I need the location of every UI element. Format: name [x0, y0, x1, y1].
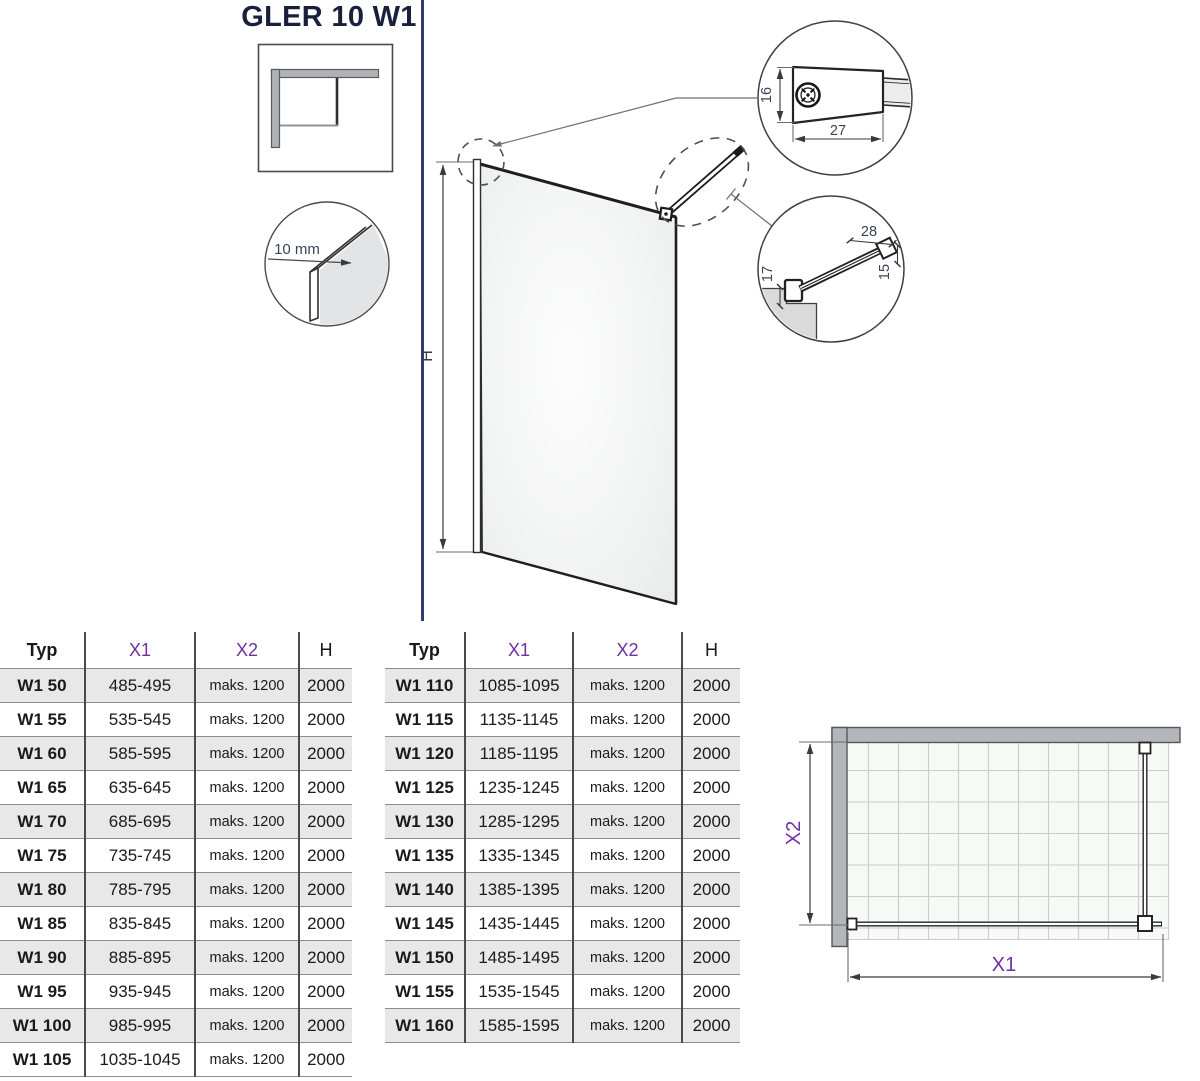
cell: 535-545	[85, 703, 195, 737]
cell: maks. 1200	[195, 669, 299, 703]
cell: 2000	[299, 941, 352, 975]
plan-wall-top	[832, 728, 1180, 743]
cell: 2000	[299, 1043, 352, 1077]
table-row: W1 1301285-1295maks. 12002000	[385, 805, 740, 839]
arm-bracket-detail: 28 15 17	[755, 196, 904, 345]
x1-dimension-label: X1	[992, 954, 1016, 976]
cell: 2000	[299, 839, 352, 873]
cell: 2000	[682, 907, 740, 941]
cell: W1 110	[385, 669, 465, 703]
x2-dimension-label: X2	[783, 821, 805, 845]
cell: 2000	[682, 737, 740, 771]
table-row: W1 75735-745maks. 12002000	[0, 839, 352, 873]
cell: 2000	[682, 771, 740, 805]
cell: 2000	[682, 873, 740, 907]
cell: maks. 1200	[195, 771, 299, 805]
sizes-table-right: Typ X1 X2 H W1 1101085-1095maks. 1200200…	[385, 632, 740, 1043]
table-row: W1 1151135-1145maks. 12002000	[385, 703, 740, 737]
table-row: W1 1601585-1595maks. 12002000	[385, 1009, 740, 1043]
table-row: W1 1501485-1495maks. 12002000	[385, 941, 740, 975]
cell: 985-995	[85, 1009, 195, 1043]
table-row: W1 85835-845maks. 12002000	[0, 907, 352, 941]
cell: maks. 1200	[573, 839, 682, 873]
cell: 2000	[299, 907, 352, 941]
cell: W1 70	[0, 805, 85, 839]
cell: 2000	[299, 805, 352, 839]
cell: maks. 1200	[195, 873, 299, 907]
cell: 835-845	[85, 907, 195, 941]
cell: 785-795	[85, 873, 195, 907]
cell: maks. 1200	[573, 873, 682, 907]
cell: 2000	[299, 669, 352, 703]
cell: 1285-1295	[465, 805, 573, 839]
cell: maks. 1200	[573, 907, 682, 941]
cell: W1 160	[385, 1009, 465, 1043]
cell: maks. 1200	[195, 805, 299, 839]
wall-profile	[474, 160, 481, 553]
table-row: W1 1201185-1195maks. 12002000	[385, 737, 740, 771]
cell: W1 50	[0, 669, 85, 703]
spec-sheet-page: 10 mm H	[0, 0, 1200, 1081]
bracket-height-label: 16	[759, 87, 775, 103]
leader-line-arm	[731, 194, 772, 226]
cell: 1085-1095	[465, 669, 573, 703]
cell: 1185-1195	[465, 737, 573, 771]
cell: maks. 1200	[195, 839, 299, 873]
plan-view: X2 X1	[783, 728, 1180, 983]
cell: maks. 1200	[195, 907, 299, 941]
cell: maks. 1200	[195, 1043, 299, 1077]
table-row: W1 1351335-1345maks. 12002000	[385, 839, 740, 873]
cell: maks. 1200	[195, 941, 299, 975]
table-row: W1 1101085-1095maks. 12002000	[385, 669, 740, 703]
cell: 1035-1045	[85, 1043, 195, 1077]
cell: 635-645	[85, 771, 195, 805]
cell: 1335-1345	[465, 839, 573, 873]
cell: W1 140	[385, 873, 465, 907]
col-header-typ: Typ	[385, 632, 465, 669]
cell: 485-495	[85, 669, 195, 703]
glass-thickness-label: 10 mm	[274, 241, 320, 258]
table-row: W1 1251235-1245maks. 12002000	[385, 771, 740, 805]
header-row: Typ X1 X2 H	[0, 632, 352, 669]
cell: maks. 1200	[573, 771, 682, 805]
cell: W1 95	[0, 975, 85, 1009]
cell: 2000	[682, 839, 740, 873]
cell: maks. 1200	[195, 737, 299, 771]
cell: W1 135	[385, 839, 465, 873]
col-header-x2: X2	[195, 632, 299, 669]
cell: W1 85	[0, 907, 85, 941]
top-view-icon	[259, 45, 393, 172]
col-header-x2: X2	[573, 632, 682, 669]
table-row: W1 1551535-1545maks. 12002000	[385, 975, 740, 1009]
cell: maks. 1200	[195, 975, 299, 1009]
table-row: W1 1051035-1045maks. 12002000	[0, 1043, 352, 1077]
glass-panel	[480, 164, 676, 604]
table-row: W1 50485-495maks. 12002000	[0, 669, 352, 703]
section-divider	[421, 0, 424, 621]
cell: 2000	[682, 1009, 740, 1043]
cell: W1 65	[0, 771, 85, 805]
cell: 1435-1445	[465, 907, 573, 941]
cell: W1 75	[0, 839, 85, 873]
arm-height-label: 15	[877, 264, 893, 280]
cell: W1 130	[385, 805, 465, 839]
cell: 2000	[682, 805, 740, 839]
cell: maks. 1200	[573, 941, 682, 975]
cell: 2000	[682, 669, 740, 703]
col-header-x1: X1	[465, 632, 573, 669]
cell: maks. 1200	[573, 737, 682, 771]
cell: 735-745	[85, 839, 195, 873]
cell: 685-695	[85, 805, 195, 839]
leader-line-bracket	[493, 98, 757, 146]
cell: W1 105	[0, 1043, 85, 1077]
sizes-table-left: Typ X1 X2 H W1 50485-495maks. 12002000W1…	[0, 632, 352, 1077]
cell: 2000	[299, 1009, 352, 1043]
table-row: W1 90885-895maks. 12002000	[0, 941, 352, 975]
page-title: GLER 10 W1	[233, 1, 425, 34]
cell: 1135-1145	[465, 703, 573, 737]
icon-wall-top	[272, 70, 379, 78]
cell: maks. 1200	[573, 805, 682, 839]
header-row: Typ X1 X2 H	[385, 632, 740, 669]
cell: 1485-1495	[465, 941, 573, 975]
table-row: W1 1401385-1395maks. 12002000	[385, 873, 740, 907]
cell: 1235-1245	[465, 771, 573, 805]
cell: 2000	[299, 703, 352, 737]
table-row: W1 65635-645maks. 12002000	[0, 771, 352, 805]
cell: 2000	[682, 703, 740, 737]
cell: W1 90	[0, 941, 85, 975]
cell: maks. 1200	[573, 669, 682, 703]
cell: 2000	[299, 975, 352, 1009]
cell: W1 80	[0, 873, 85, 907]
cell: maks. 1200	[573, 703, 682, 737]
cell: W1 55	[0, 703, 85, 737]
table-row: W1 100985-995maks. 12002000	[0, 1009, 352, 1043]
cell: maks. 1200	[195, 703, 299, 737]
cell: 1385-1395	[465, 873, 573, 907]
arm-offset-label: 17	[760, 266, 776, 282]
table-row: W1 95935-945maks. 12002000	[0, 975, 352, 1009]
cell: W1 115	[385, 703, 465, 737]
col-header-typ: Typ	[0, 632, 85, 669]
cell: 2000	[299, 771, 352, 805]
cell: 935-945	[85, 975, 195, 1009]
col-header-h: H	[682, 632, 740, 669]
cell: 585-595	[85, 737, 195, 771]
cell: 2000	[299, 737, 352, 771]
cell: W1 145	[385, 907, 465, 941]
plan-wall-left	[832, 728, 847, 947]
main-drawing: H	[419, 98, 772, 604]
cell: 2000	[682, 941, 740, 975]
table-row: W1 60585-595maks. 12002000	[0, 737, 352, 771]
cell: W1 150	[385, 941, 465, 975]
cell: maks. 1200	[573, 975, 682, 1009]
cell: 1585-1595	[465, 1009, 573, 1043]
wall-bracket-detail: 16 27	[758, 21, 913, 175]
cell: maks. 1200	[195, 1009, 299, 1043]
col-header-x1: X1	[85, 632, 195, 669]
cell: 885-895	[85, 941, 195, 975]
icon-wall-left	[272, 70, 280, 148]
bracket-depth-label: 27	[830, 123, 846, 139]
table-row: W1 1451435-1445maks. 12002000	[385, 907, 740, 941]
cell: 1535-1545	[465, 975, 573, 1009]
cell: 2000	[682, 975, 740, 1009]
col-header-h: H	[299, 632, 352, 669]
table-row: W1 80785-795maks. 12002000	[0, 873, 352, 907]
cell: maks. 1200	[573, 1009, 682, 1043]
arm-wall-connector	[785, 280, 802, 301]
glass-thickness-detail: 10 mm	[265, 202, 392, 330]
cell: W1 60	[0, 737, 85, 771]
table-row: W1 55535-545maks. 12002000	[0, 703, 352, 737]
table-row: W1 70685-695maks. 12002000	[0, 805, 352, 839]
cell: W1 125	[385, 771, 465, 805]
cell: W1 155	[385, 975, 465, 1009]
cell: W1 100	[0, 1009, 85, 1043]
arm-length-label: 28	[861, 224, 877, 240]
cell: 2000	[299, 873, 352, 907]
cell: W1 120	[385, 737, 465, 771]
